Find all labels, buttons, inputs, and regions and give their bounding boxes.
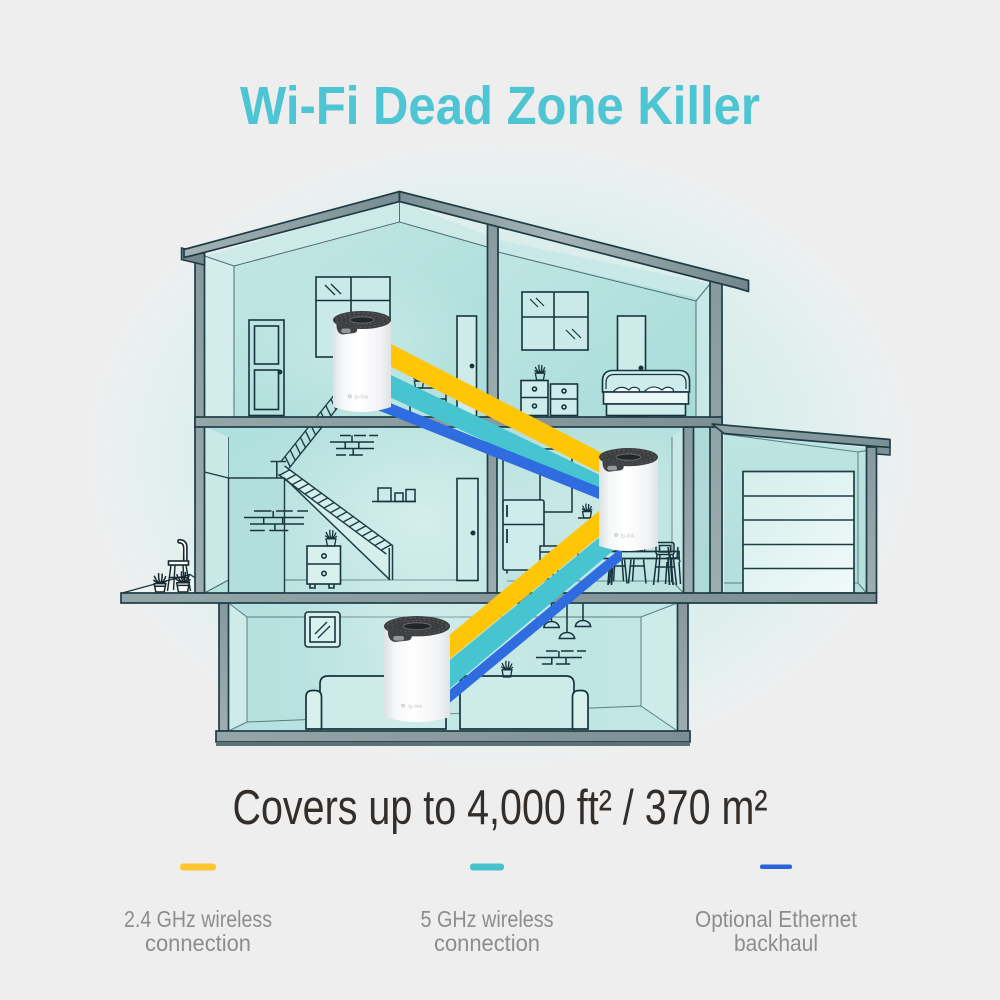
svg-text:connection: connection [145, 930, 251, 956]
svg-text:tp-link: tp-link [355, 395, 369, 401]
svg-text:connection: connection [434, 930, 540, 956]
svg-text:Covers up to 4,000 ft² / 370 m: Covers up to 4,000 ft² / 370 m² [233, 781, 768, 835]
svg-text:tp-link: tp-link [408, 704, 422, 710]
svg-text:2.4 GHz wireless: 2.4 GHz wireless [124, 906, 272, 932]
svg-text:5 GHz wireless: 5 GHz wireless [421, 906, 554, 932]
svg-text:Optional Ethernet: Optional Ethernet [695, 906, 857, 932]
svg-text:Wi-Fi Dead Zone Killer: Wi-Fi Dead Zone Killer [240, 76, 760, 136]
svg-text:tp-link: tp-link [621, 533, 635, 539]
svg-text:backhaul: backhaul [734, 930, 818, 956]
